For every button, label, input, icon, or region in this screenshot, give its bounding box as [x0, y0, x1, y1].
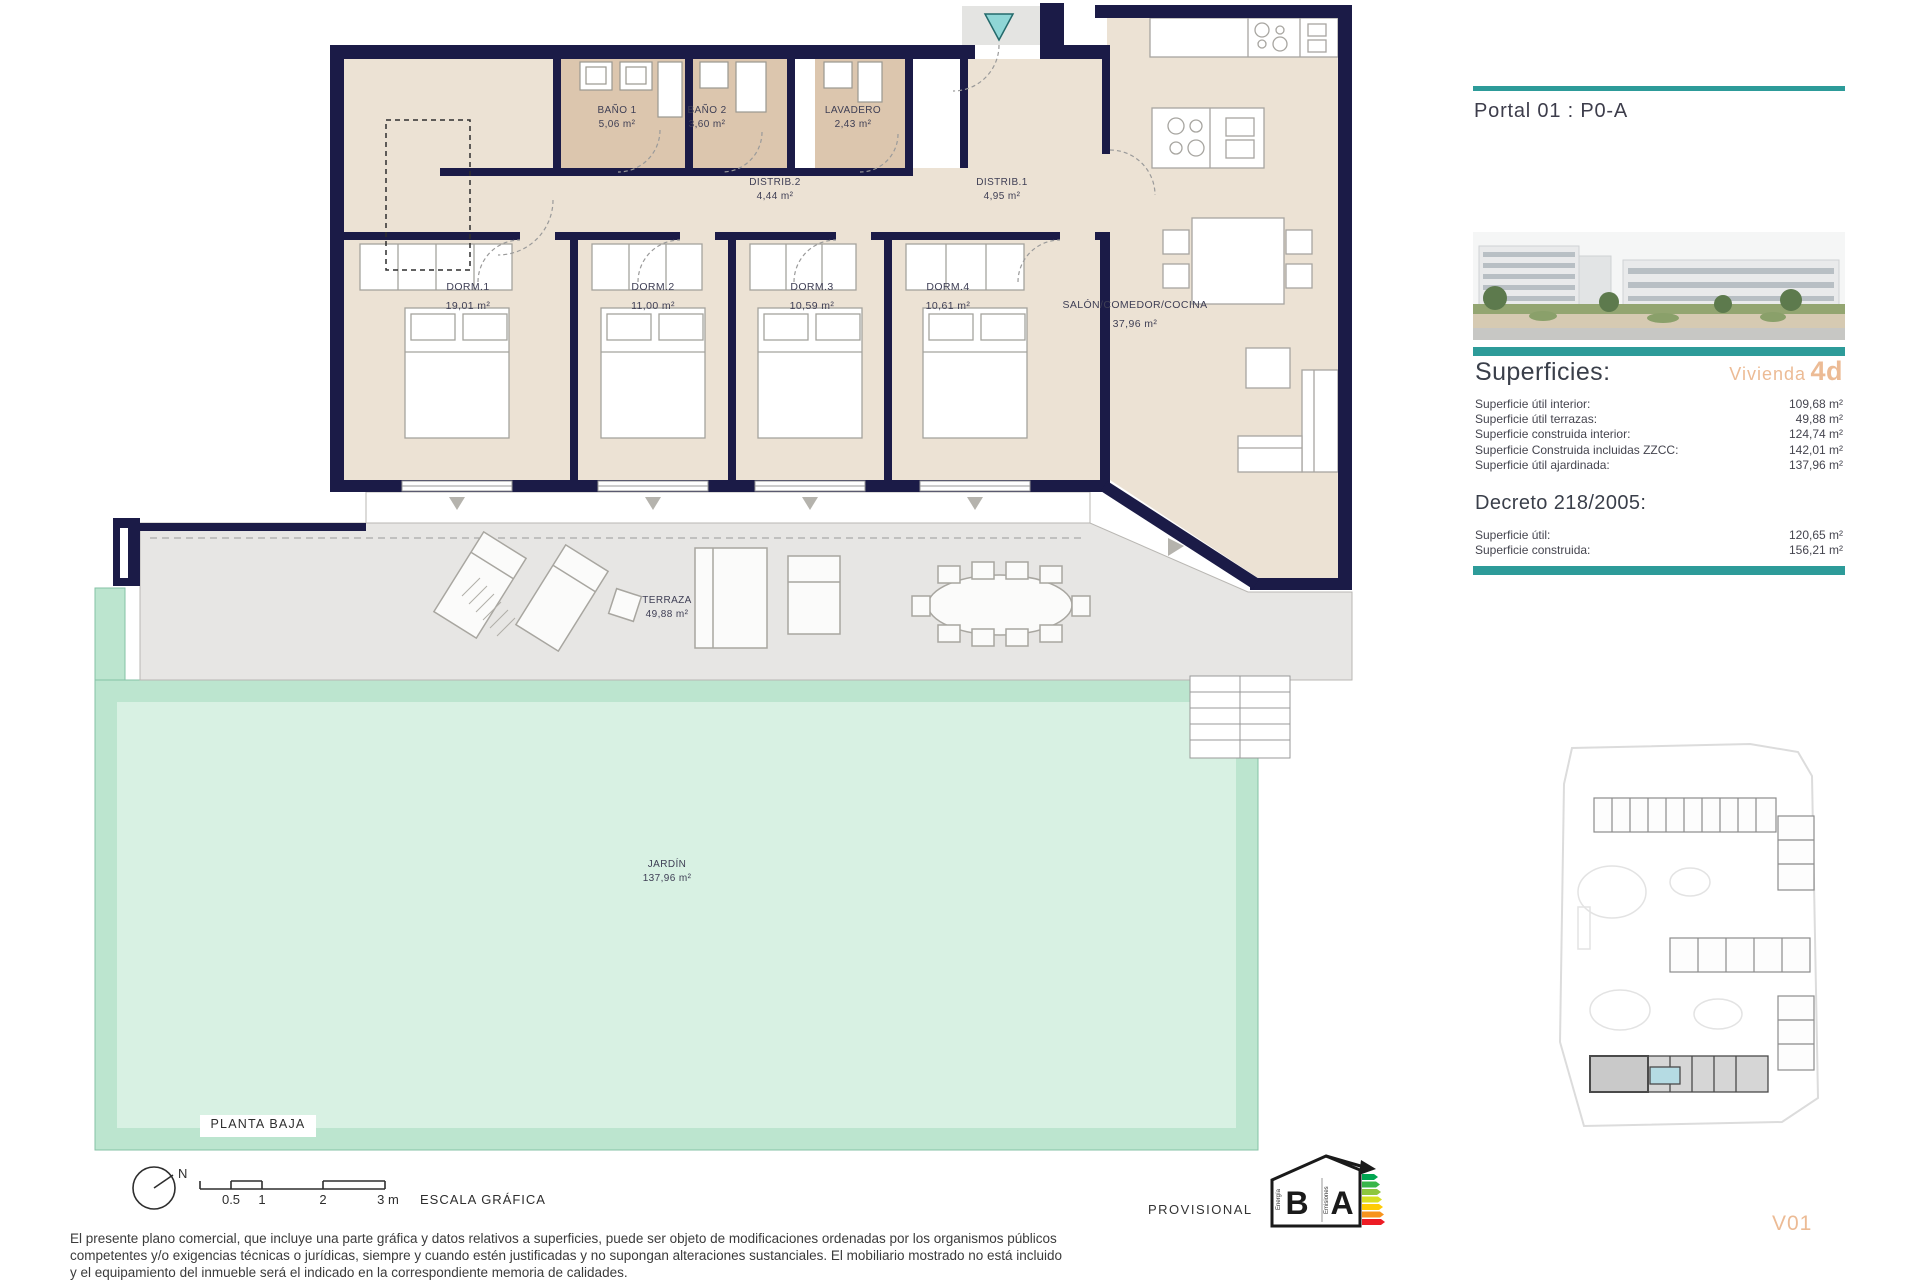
room-label-terraza: TERRAZA49,88 m²	[642, 594, 691, 622]
highlighted-unit	[1650, 1067, 1680, 1084]
table-row: Superficie construida:156,21 m²	[1475, 543, 1843, 558]
disclaimer-line: y el equipamiento del inmueble será el i…	[70, 1264, 1650, 1281]
scale-caption: ESCALA GRÁFICA	[420, 1192, 546, 1207]
table-row: Superficie Construida incluidas ZZCC:142…	[1475, 443, 1843, 458]
decreto-rule	[1473, 566, 1845, 575]
scale-bar	[198, 1176, 398, 1192]
energy-caption-right: Emisiones	[1324, 1186, 1330, 1214]
vivienda-label: Vivienda 4d	[1729, 356, 1843, 387]
room-label-dorm1: DORM.119,01 m²	[446, 278, 491, 316]
room-label-distrib2: DISTRIB.24,44 m²	[749, 176, 800, 204]
side-window	[120, 528, 128, 578]
energy-rating-icon: B A Energía Emisiones	[1264, 1148, 1386, 1234]
north-label: N	[178, 1166, 187, 1181]
scale-tick: 1	[258, 1192, 265, 1207]
bedroom-furniture	[360, 244, 1027, 438]
sidebar-top-rule	[1473, 86, 1845, 91]
room-label-dorm4: DORM.410,61 m²	[926, 278, 971, 316]
disclaimer-line: competentes y/o exigencias técnicas o ju…	[70, 1247, 1650, 1264]
table-row: Superficie útil terrazas:49,88 m²	[1475, 412, 1843, 427]
energy-letter-right: A	[1330, 1185, 1353, 1221]
site-key-plan	[1550, 742, 1850, 1132]
floor-name-label: PLANTA BAJA	[200, 1115, 316, 1137]
room-label-bano1: BAÑO 15,06 m²	[597, 104, 636, 132]
floor-plan-drawing	[0, 0, 1470, 1280]
energy-caption-left: Energía	[1276, 1188, 1282, 1210]
superficies-rule	[1473, 347, 1845, 356]
scale-tick: 2	[319, 1192, 326, 1207]
disclaimer-line: El presente plano comercial, que incluye…	[70, 1230, 1650, 1247]
room-label-salon: SALÓN/COMEDOR/COCINA37,96 m²	[1062, 296, 1207, 334]
scale-tick: 0.5	[222, 1192, 240, 1207]
provisional-label: PROVISIONAL	[1148, 1202, 1253, 1217]
window-sill-band	[366, 492, 1090, 523]
garden-stairs-icon	[1190, 676, 1290, 758]
building-render-image	[1473, 232, 1845, 340]
room-label-jardin: JARDÍN137,96 m²	[643, 858, 692, 886]
entry-porch	[962, 3, 1064, 45]
table-row: Superficie útil ajardinada:137,96 m²	[1475, 458, 1843, 473]
scale-tick: 3 m	[377, 1192, 399, 1207]
energy-letter-left: B	[1285, 1185, 1308, 1221]
table-row: Superficie útil interior:109,68 m²	[1475, 397, 1843, 412]
room-label-bano2: BAÑO 23,60 m²	[687, 104, 726, 132]
room-label-dorm3: DORM.310,59 m²	[790, 278, 835, 316]
decreto-title: Decreto 218/2005:	[1475, 492, 1646, 515]
superficies-table: Superficie útil interior:109,68 m² Super…	[1475, 397, 1843, 473]
energy-arrow-scale	[1362, 1174, 1385, 1225]
superficies-header: Superficies: Vivienda 4d	[1475, 356, 1843, 387]
portal-title: Portal 01 : P0-A	[1474, 100, 1628, 123]
decreto-table: Superficie útil:120,65 m² Superficie con…	[1475, 528, 1843, 558]
room-label-lavadero: LAVADERO2,43 m²	[825, 104, 881, 132]
superficies-title: Superficies:	[1475, 358, 1610, 387]
table-row: Superficie construida interior:124,74 m²	[1475, 427, 1843, 442]
version-label: V01	[1772, 1212, 1812, 1236]
table-row: Superficie útil:120,65 m²	[1475, 528, 1843, 543]
page: { "plan": { "floor_label": "PLANTA BAJA"…	[0, 0, 1920, 1280]
room-label-dorm2: DORM.211,00 m²	[631, 278, 675, 316]
room-label-distrib1: DISTRIB.14,95 m²	[976, 176, 1027, 204]
